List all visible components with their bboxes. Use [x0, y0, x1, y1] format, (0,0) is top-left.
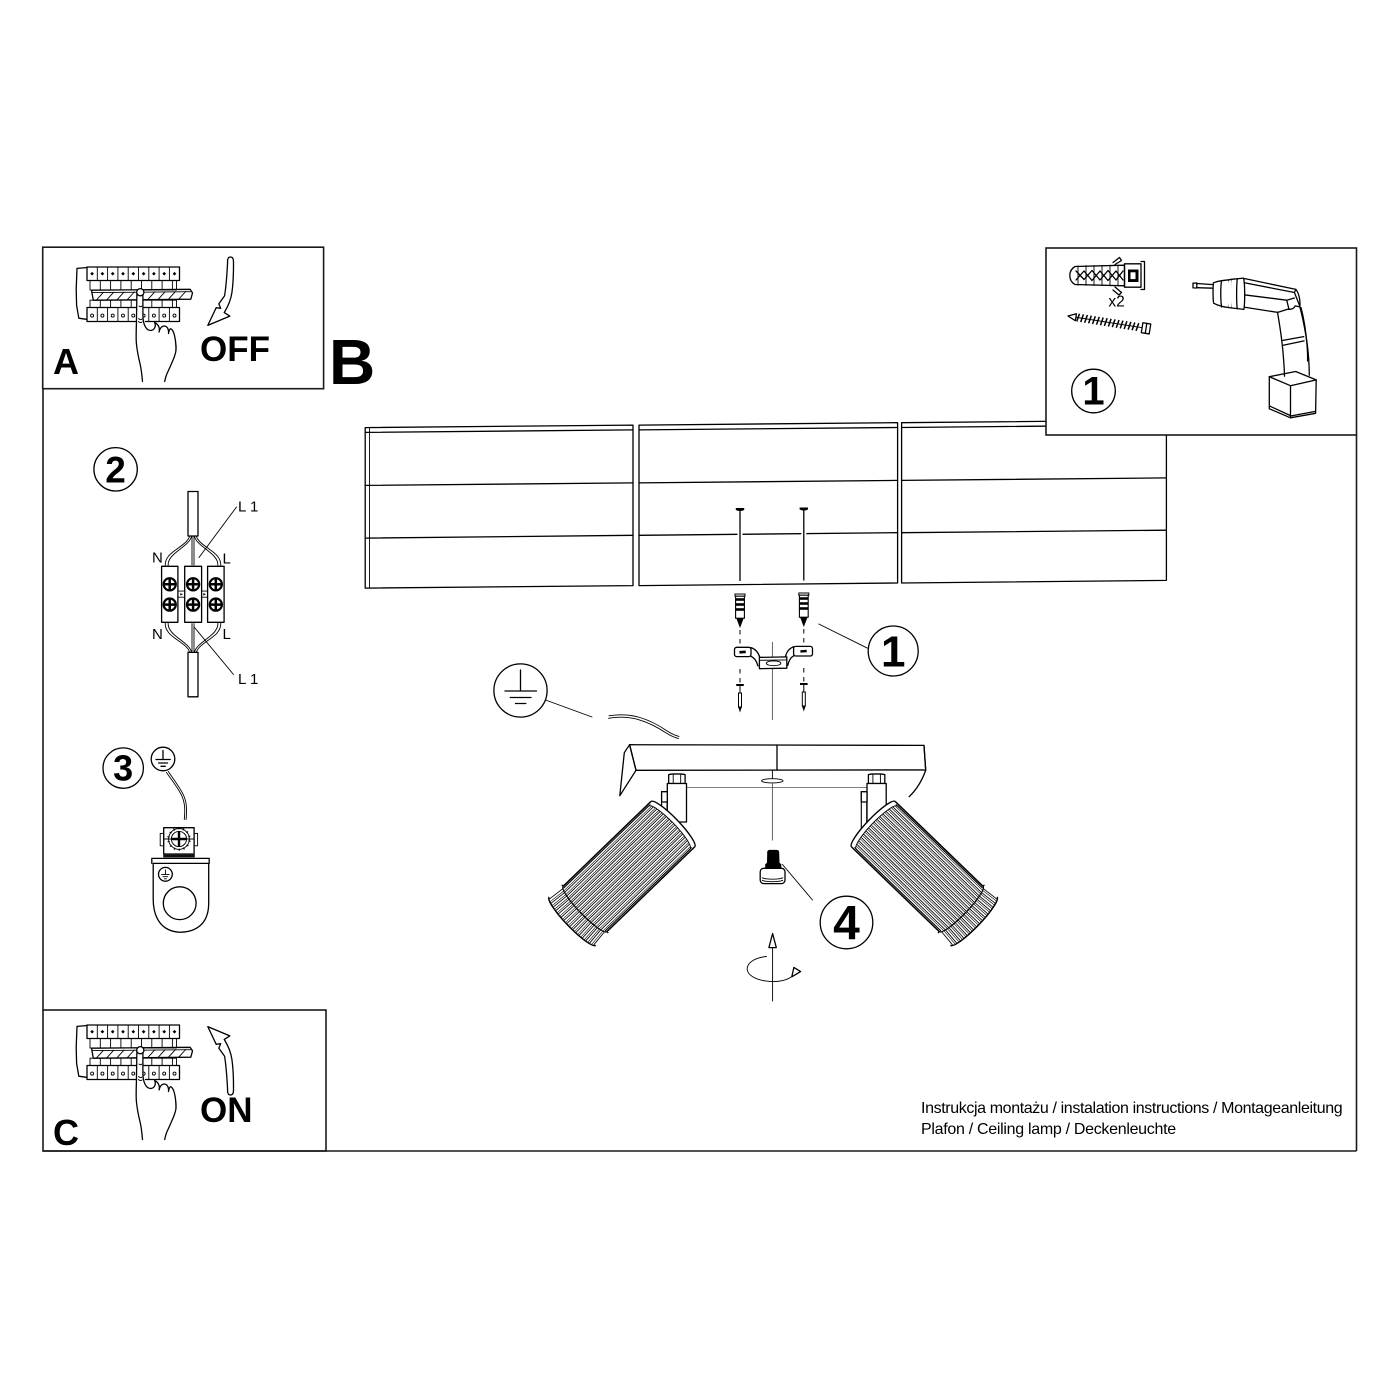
- svg-text:2: 2: [105, 449, 126, 490]
- svg-text:Plafon / Ceiling lamp / Decken: Plafon / Ceiling lamp / Deckenleuchte: [921, 1121, 1176, 1138]
- svg-text:L: L: [223, 626, 231, 643]
- svg-text:N: N: [152, 550, 163, 567]
- svg-text:3: 3: [113, 748, 133, 789]
- svg-text:L 1: L 1: [238, 671, 258, 688]
- svg-text:1: 1: [881, 628, 905, 677]
- svg-text:1: 1: [1082, 370, 1104, 414]
- svg-text:B: B: [329, 326, 375, 398]
- svg-text:L 1: L 1: [238, 499, 258, 516]
- svg-text:A: A: [53, 341, 79, 382]
- svg-text:ON: ON: [200, 1091, 253, 1130]
- svg-text:OFF: OFF: [200, 330, 270, 369]
- svg-text:4: 4: [833, 898, 860, 951]
- svg-text:C: C: [53, 1112, 79, 1153]
- svg-text:x2: x2: [1108, 294, 1124, 311]
- svg-text:Instrukcja montażu / instalati: Instrukcja montażu / instalation instruc…: [921, 1100, 1342, 1117]
- svg-text:N: N: [152, 626, 163, 643]
- svg-text:L: L: [223, 551, 231, 568]
